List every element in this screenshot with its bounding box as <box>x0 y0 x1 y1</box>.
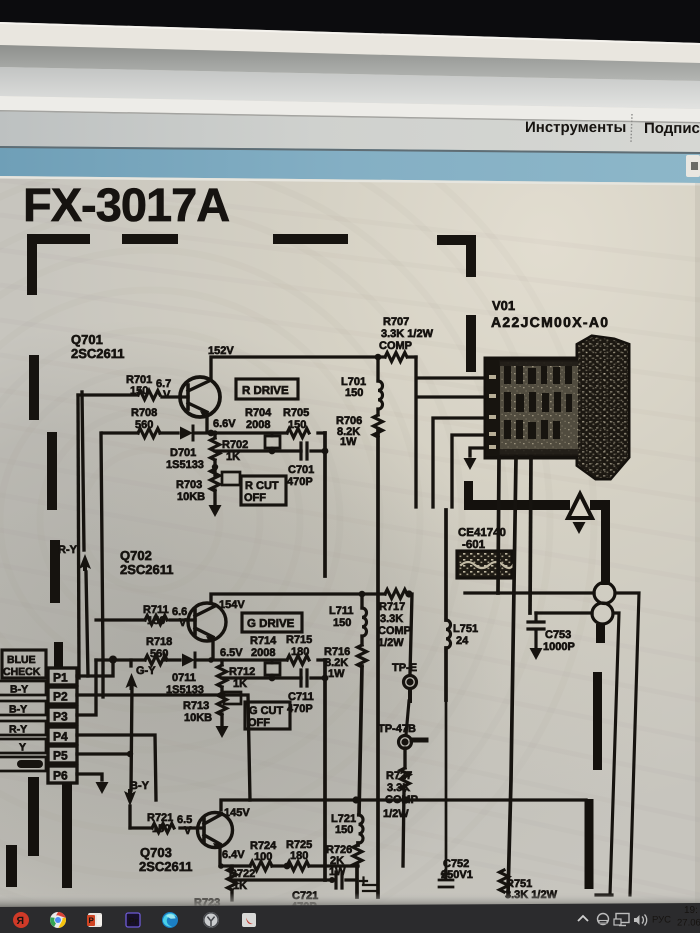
svg-text:V: V <box>163 389 171 401</box>
svg-text:10KB: 10KB <box>177 491 205 503</box>
svg-text:1K: 1K <box>226 451 240 463</box>
svg-text:R713: R713 <box>183 700 209 712</box>
svg-text:OFF: OFF <box>244 492 266 504</box>
svg-text:C711: C711 <box>288 691 314 703</box>
svg-text:150: 150 <box>345 387 363 399</box>
svg-text:COMP: COMP <box>379 340 412 352</box>
svg-text:3.3K: 3.3K <box>380 613 403 625</box>
svg-text:P4: P4 <box>53 730 68 744</box>
svg-text:РУС: РУС <box>652 915 671 926</box>
svg-text:R707: R707 <box>383 316 409 328</box>
svg-text:C753: C753 <box>545 629 571 641</box>
svg-text:6.4V: 6.4V <box>222 849 245 861</box>
svg-text:CHECK: CHECK <box>3 666 41 678</box>
svg-text:P1: P1 <box>53 671 68 685</box>
svg-text:1W: 1W <box>340 436 357 448</box>
svg-text:Подписа: Подписа <box>644 120 700 137</box>
svg-text:R DRIVE: R DRIVE <box>242 385 289 397</box>
svg-text:2008: 2008 <box>246 419 270 431</box>
svg-text:1000P: 1000P <box>543 641 575 653</box>
svg-text:P2: P2 <box>53 690 68 704</box>
svg-text:1K: 1K <box>233 678 247 690</box>
svg-text:1W: 1W <box>329 866 346 878</box>
svg-text:L711: L711 <box>329 605 353 617</box>
svg-text:B-Y: B-Y <box>9 704 27 716</box>
svg-text:R704: R704 <box>245 407 272 419</box>
svg-text:Инструменты: Инструменты <box>525 119 626 136</box>
svg-text:R703: R703 <box>176 479 202 491</box>
svg-text:L751: L751 <box>453 623 478 635</box>
svg-text:Q701: Q701 <box>71 332 103 347</box>
svg-text:R712: R712 <box>229 666 255 678</box>
svg-text:R715: R715 <box>286 634 312 646</box>
svg-text:V01: V01 <box>492 298 515 313</box>
svg-text:FX-3017A: FX-3017A <box>23 178 229 231</box>
svg-text:P: P <box>89 916 95 925</box>
svg-text:2SC2611: 2SC2611 <box>71 346 125 361</box>
svg-text:R722: R722 <box>229 868 255 880</box>
svg-text:Y: Y <box>19 742 26 754</box>
svg-text:R705: R705 <box>283 407 309 419</box>
svg-text:0711: 0711 <box>172 672 196 684</box>
svg-text:Pr: Pr <box>129 916 139 926</box>
svg-text:152V: 152V <box>208 345 234 357</box>
svg-text:G CUT: G CUT <box>249 705 284 717</box>
svg-text:P5: P5 <box>53 749 68 763</box>
svg-text:Я: Я <box>17 915 25 927</box>
svg-text:A22JCM00X-A0: A22JCM00X-A0 <box>491 314 609 330</box>
svg-text:C701: C701 <box>288 464 314 476</box>
svg-text:10KB: 10KB <box>184 712 212 724</box>
svg-text:150: 150 <box>333 617 351 629</box>
svg-text:R-Y: R-Y <box>9 724 27 736</box>
svg-text:R717: R717 <box>379 601 405 613</box>
svg-text:6.6V: 6.6V <box>213 418 236 430</box>
svg-text:R714: R714 <box>250 635 277 647</box>
svg-text:1/2W: 1/2W <box>378 637 404 649</box>
svg-text:P3: P3 <box>53 710 68 724</box>
svg-text:BLUE: BLUE <box>7 654 36 666</box>
svg-text:6.5V: 6.5V <box>220 647 243 659</box>
svg-text:D701: D701 <box>170 447 196 459</box>
svg-text:R702: R702 <box>222 439 248 451</box>
svg-text:TP-47B: TP-47B <box>378 723 416 735</box>
svg-text:2SC2611: 2SC2611 <box>139 859 193 874</box>
svg-text:180: 180 <box>290 850 308 862</box>
svg-text:R CUT: R CUT <box>245 480 279 492</box>
svg-text:-601: -601 <box>462 539 486 551</box>
svg-text:Q703: Q703 <box>140 845 172 860</box>
svg-text:TP-E: TP-E <box>392 662 417 674</box>
svg-text:OFF: OFF <box>248 717 270 729</box>
svg-text:R-Y: R-Y <box>58 544 78 556</box>
svg-text:1S5133: 1S5133 <box>166 459 204 471</box>
svg-text:2008: 2008 <box>251 647 275 659</box>
svg-text:Q702: Q702 <box>120 548 152 563</box>
svg-text:2SC2611: 2SC2611 <box>120 562 174 577</box>
svg-text:3.3K: 3.3K <box>387 782 410 794</box>
svg-text:G-Y: G-Y <box>136 665 156 677</box>
svg-text:24: 24 <box>456 635 469 647</box>
svg-text:3.3K 1/2W: 3.3K 1/2W <box>381 328 434 340</box>
svg-text:19:: 19: <box>684 905 698 916</box>
svg-text:B-Y: B-Y <box>130 780 150 792</box>
svg-text:R708: R708 <box>131 407 157 419</box>
svg-text:1W: 1W <box>328 668 345 680</box>
svg-text:1K: 1K <box>233 880 247 892</box>
svg-text:B-Y: B-Y <box>10 684 28 696</box>
svg-text:COMP: COMP <box>378 625 411 637</box>
svg-text:R718: R718 <box>146 636 172 648</box>
svg-text:R727: R727 <box>386 770 412 782</box>
svg-text:1/2W: 1/2W <box>383 808 409 820</box>
svg-text:P6: P6 <box>53 769 68 783</box>
svg-text:150: 150 <box>335 824 353 836</box>
svg-text:470P: 470P <box>287 476 313 488</box>
svg-text:G DRIVE: G DRIVE <box>247 618 295 630</box>
svg-text:27.06.: 27.06. <box>677 918 700 929</box>
